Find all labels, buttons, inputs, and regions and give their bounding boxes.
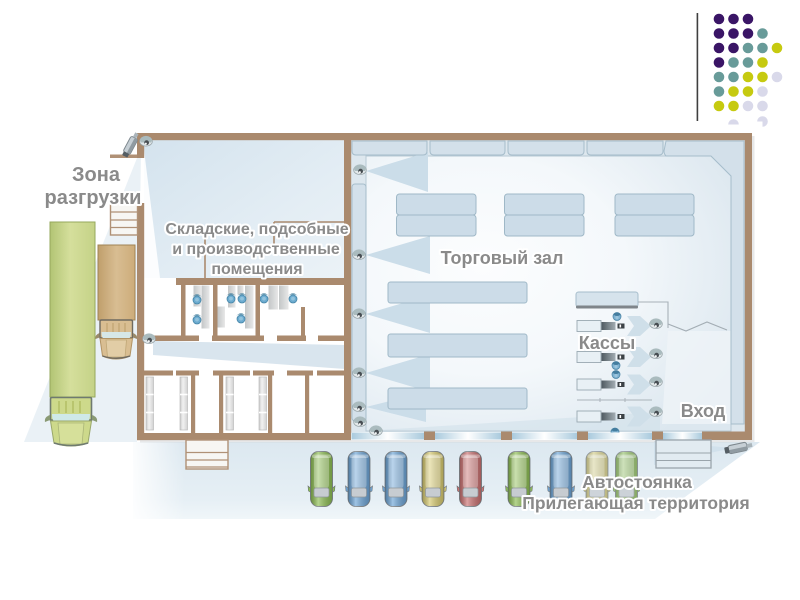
svg-text:Вход: Вход — [681, 401, 726, 421]
svg-text:Складские, подсобные: Складские, подсобные — [165, 221, 348, 238]
svg-text:помещения: помещения — [211, 261, 302, 278]
svg-text:Прилегающая территория: Прилегающая территория — [522, 493, 750, 513]
svg-text:Зона: Зона — [72, 164, 121, 186]
svg-text:Торговый зал: Торговый зал — [441, 248, 564, 268]
svg-text:Кассы: Кассы — [579, 333, 636, 353]
svg-text:и производственные: и производственные — [172, 241, 340, 258]
svg-text:разгрузки: разгрузки — [45, 187, 142, 209]
svg-text:Автостоянка: Автостоянка — [582, 472, 692, 492]
